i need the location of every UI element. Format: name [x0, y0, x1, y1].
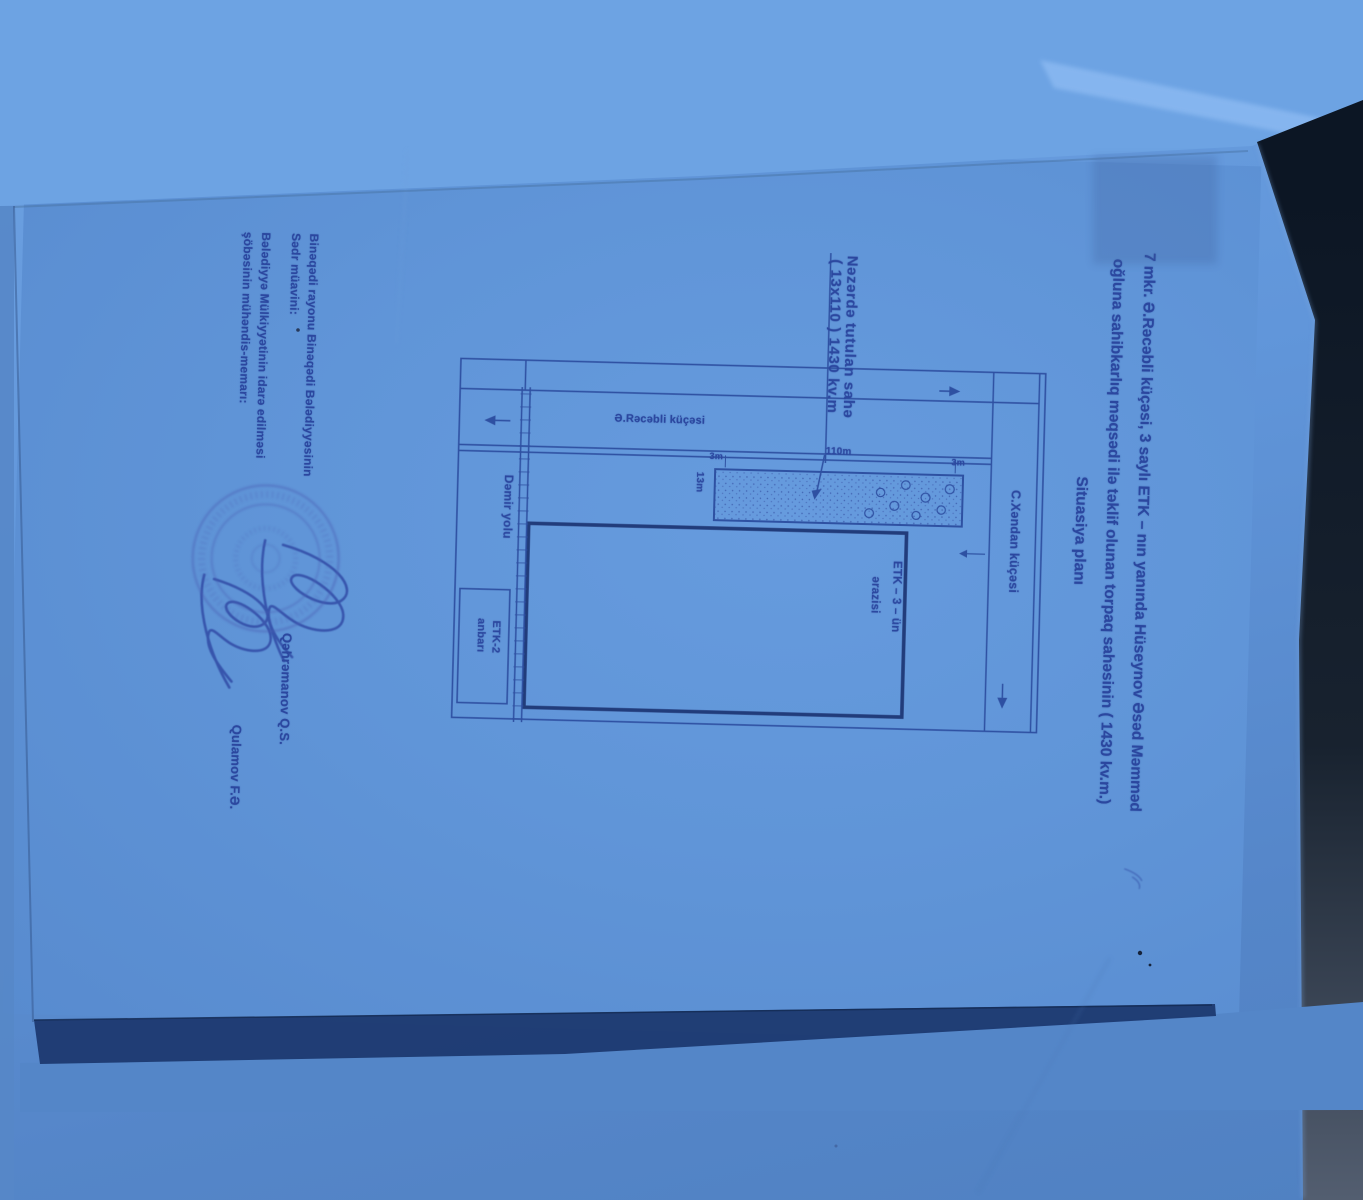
railway-label: Dəmir yolu: [500, 475, 516, 539]
street-label-racabli: Ə.Rəcəbli küçəsi: [614, 412, 705, 426]
signoff-name1: Qəhrəmanov Q.S.: [277, 633, 295, 745]
gap-dim-arrow: [965, 554, 985, 555]
etk2-label-line2: anbarı: [474, 618, 487, 653]
etk3-parcel: [524, 523, 907, 717]
street-label-xandan: C.Xəndan küçəsi: [1006, 490, 1023, 593]
signoff-role1: Sədr müavini:: [287, 233, 303, 315]
signoff-name2: Qulamov F.Ə.: [227, 725, 244, 810]
dim-3m-bottom: 3m: [709, 451, 723, 461]
dark-background-right: [1257, 100, 1363, 1200]
etk3-label-line2: ərazisi: [868, 576, 881, 614]
racabli-street-lines: [459, 358, 1040, 465]
dim-110m: 110m: [826, 446, 852, 458]
proposed-plot: [714, 469, 963, 526]
sheet-right-edge-highlight: [1257, 144, 1315, 1198]
dim-13m: 13m: [694, 472, 706, 493]
pen-marks: [1124, 869, 1141, 888]
photo-of-document: 7 mkr. Ə.Rəcəbli küçəsi, 3 saylı ETK – n…: [0, 0, 1363, 1200]
etk2-label-line1: ETK-2: [489, 620, 502, 653]
etk3-label-line1: ETK – 3 – ün: [889, 561, 903, 633]
paper-sheet: 7 mkr. Ə.Rəcəbli küçəsi, 3 saylı ETK – n…: [3, 134, 1262, 1046]
drawing-frame: [452, 358, 1046, 732]
bright-edge-band: [1040, 60, 1352, 146]
official-stamp: [188, 480, 344, 636]
dim-3m-top: 3m: [951, 457, 965, 467]
